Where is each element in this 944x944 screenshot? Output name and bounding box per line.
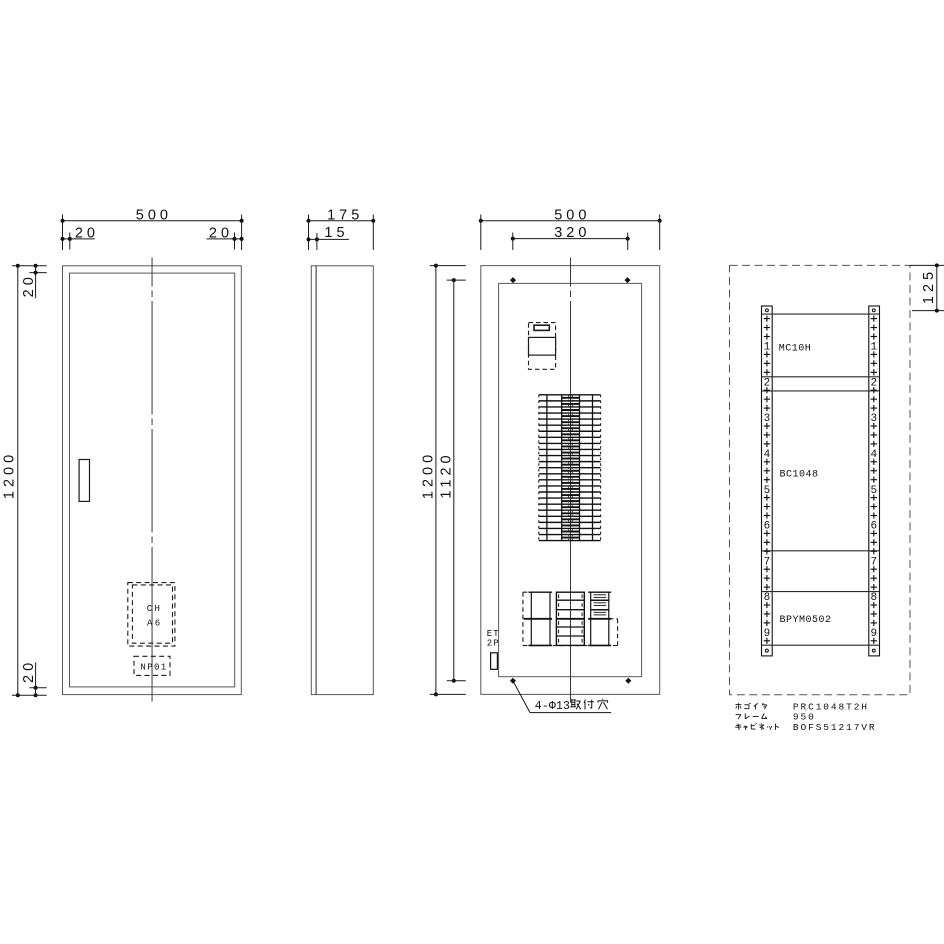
svg-text:ET: ET — [487, 629, 500, 639]
svg-text:20: 20 — [209, 225, 233, 241]
svg-text:20: 20 — [75, 225, 99, 241]
svg-text:BOFS51217VR: BOFS51217VR — [793, 722, 877, 733]
svg-text:BC1048: BC1048 — [780, 470, 819, 481]
svg-text:20: 20 — [21, 659, 37, 683]
svg-text:CH: CH — [147, 604, 163, 614]
svg-text:175: 175 — [327, 207, 363, 223]
svg-text:500: 500 — [136, 207, 172, 223]
svg-text:500: 500 — [554, 207, 590, 223]
svg-text:2P: 2P — [487, 639, 500, 649]
svg-text:20: 20 — [21, 273, 37, 297]
svg-text:320: 320 — [554, 225, 590, 241]
svg-text:4-Φ13: 4-Φ13 — [535, 700, 570, 713]
svg-text:MC10H: MC10H — [779, 344, 812, 355]
svg-text:125: 125 — [921, 268, 937, 304]
svg-text:1200: 1200 — [2, 451, 18, 499]
svg-text:1120: 1120 — [438, 451, 454, 498]
svg-text:A6: A6 — [147, 618, 163, 628]
svg-text:15: 15 — [324, 225, 348, 241]
svg-text:NP01: NP01 — [140, 663, 167, 673]
svg-text:1200: 1200 — [420, 451, 436, 499]
svg-text:950: 950 — [793, 712, 816, 723]
svg-text:BPYM0502: BPYM0502 — [780, 615, 832, 626]
